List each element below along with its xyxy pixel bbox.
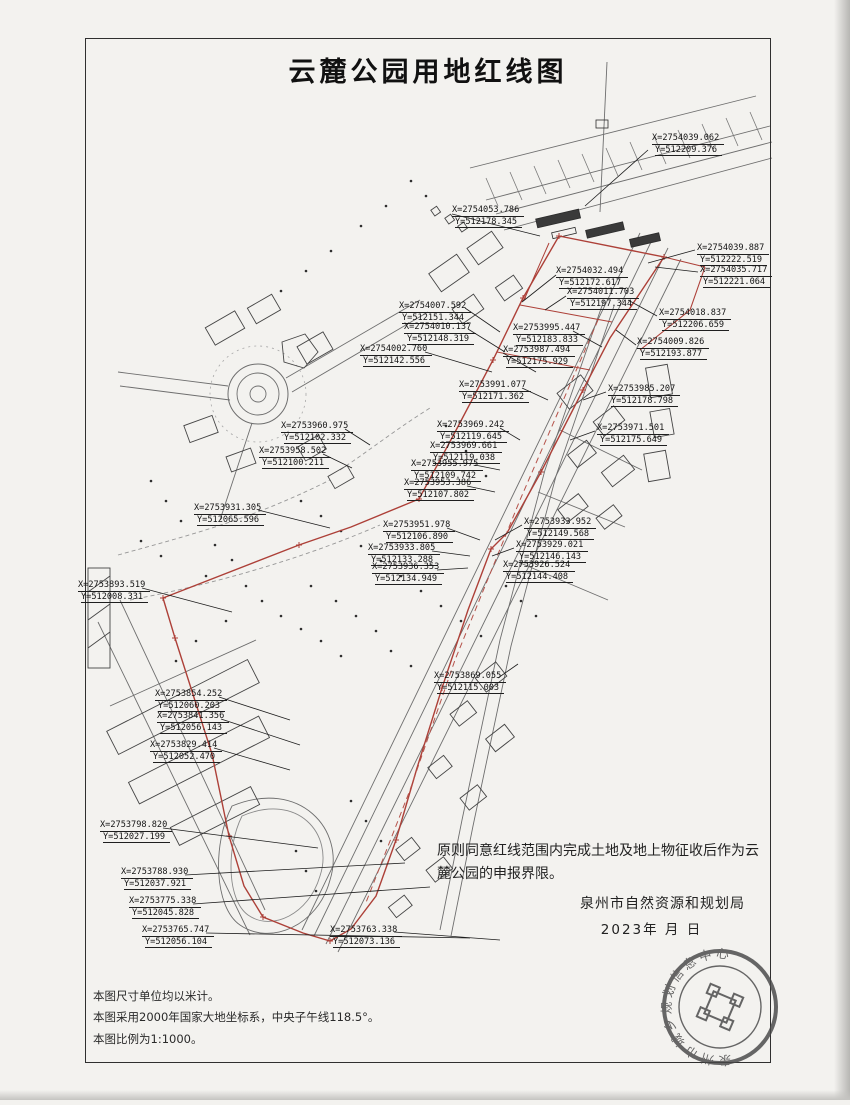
- coordinate-label: X=2753953.386Y=512107.802: [404, 478, 476, 501]
- coordinate-label: X=2754035.717Y=512221.064: [700, 265, 772, 288]
- coordinate-label: X=2753931.305Y=512065.596: [194, 503, 266, 526]
- coordinate-label: X=2754002.760Y=512142.556: [360, 344, 432, 367]
- coordinate-label: X=2753958.502Y=512100.211: [259, 446, 331, 469]
- coordinate-label: X=2754018.837Y=512206.659: [659, 308, 731, 331]
- coordinate-label: X=2753926.524Y=512144.408: [503, 560, 575, 583]
- coordinate-label: X=2754009.826Y=512193.877: [637, 337, 709, 360]
- coordinate-label: X=2753995.447Y=512183.833: [513, 323, 585, 346]
- seal-emblem-icon: [687, 974, 752, 1039]
- approval-note: 原则同意红线范围内完成土地及地上物征收后作为云麓公园的申报界限。: [437, 840, 759, 886]
- agency-name: 泉州市自然资源和规划局: [545, 893, 780, 913]
- note-units: 本图尺寸单位均以米计。: [93, 986, 379, 1007]
- coordinate-label: X=2753798.820Y=512027.199: [100, 820, 172, 843]
- note-scale: 本图比例为1:1000。: [93, 1029, 379, 1050]
- coordinate-label: X=2754039.062Y=512209.376: [652, 133, 724, 156]
- coordinate-label: X=2753893.519Y=512008.331: [78, 580, 150, 603]
- coordinate-label: X=2753960.975Y=512102.332: [281, 421, 353, 444]
- coordinate-label: X=2754007.592Y=512151.344: [399, 301, 471, 324]
- coordinate-label: X=2754011.703Y=512197.344: [567, 287, 639, 310]
- coordinate-label: X=2754053.786Y=512178.345: [452, 205, 524, 228]
- coordinate-label: X=2753788.930Y=512037.921: [121, 867, 193, 890]
- coordinate-label: X=2753854.252Y=512060.203: [155, 689, 227, 712]
- coordinate-label: X=2753951.978Y=512106.890: [383, 520, 455, 543]
- coordinate-label: X=2753829.414Y=512052.470: [150, 740, 222, 763]
- scan-edge-shadow: [834, 0, 850, 1100]
- coordinate-label: X=2753765.747Y=512056.104: [142, 925, 214, 948]
- coordinate-label: X=2753969.242Y=512119.645: [437, 420, 509, 443]
- scan-edge-shadow-bottom: [0, 1090, 850, 1100]
- coordinate-label: X=2753936.353Y=512134.949: [372, 562, 444, 585]
- coordinate-label: X=2753869.055Y=512115.003: [434, 671, 506, 694]
- coordinate-label: X=2754010.137Y=512148.319: [404, 322, 476, 345]
- coordinate-label: X=2754032.494Y=512172.617: [556, 266, 628, 289]
- map-notes: 本图尺寸单位均以米计。 本图采用2000年国家大地坐标系，中央子午线118.5°…: [93, 986, 379, 1050]
- coordinate-label: X=2753987.494Y=512175.929: [503, 345, 575, 368]
- note-datum: 本图采用2000年国家大地坐标系，中央子午线118.5°。: [93, 1007, 379, 1028]
- coordinate-label: X=2754039.887Y=512222.519: [697, 243, 769, 266]
- coordinate-label: X=2753763.338Y=512073.136: [330, 925, 402, 948]
- coordinate-label: X=2753971.501Y=512175.649: [597, 423, 669, 446]
- coordinate-label: X=2753841.356Y=512056.143: [157, 711, 229, 734]
- coordinate-label: X=2753985.207Y=512178.798: [608, 384, 680, 407]
- coordinate-label: X=2753775.338Y=512045.828: [129, 896, 201, 919]
- coordinate-label: X=2753933.952Y=512149.568: [524, 517, 596, 540]
- coordinate-label: X=2753991.077Y=512171.362: [459, 380, 531, 403]
